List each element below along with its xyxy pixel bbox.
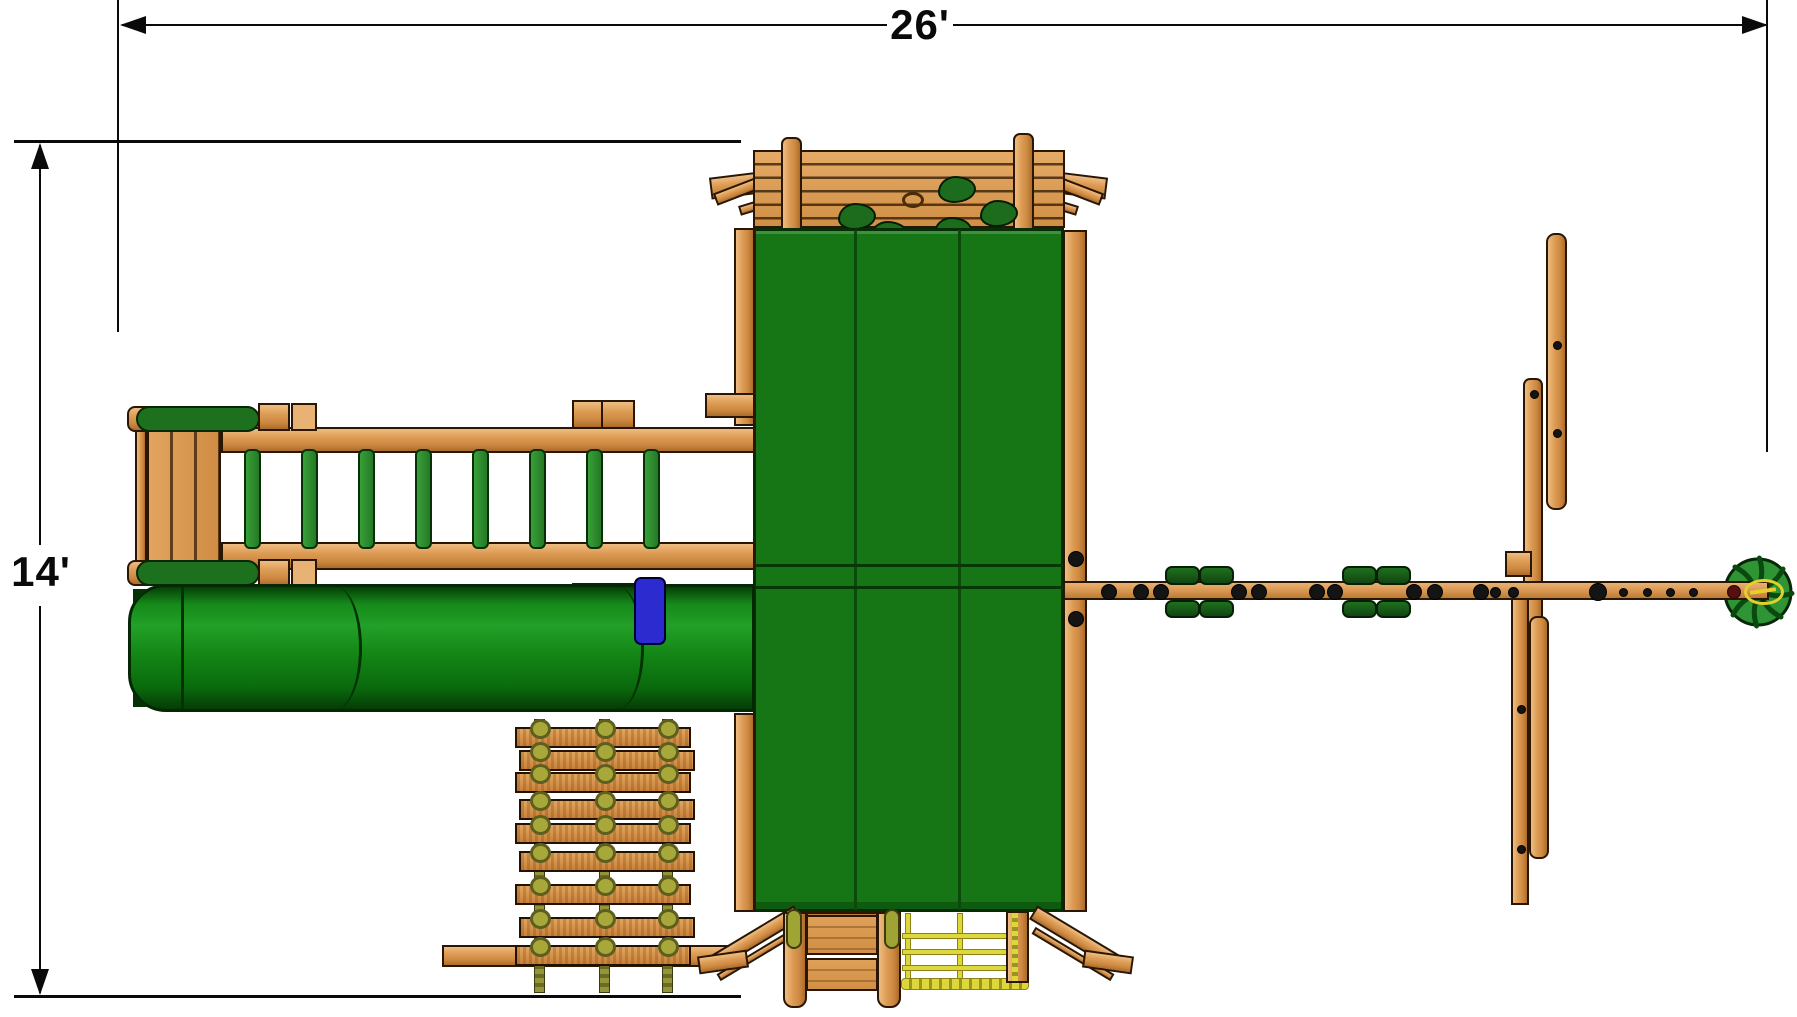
entry-side-rail — [135, 429, 147, 563]
rope-ladder-slat-5 — [515, 823, 691, 844]
swing-frame-cross-stub — [1505, 551, 1532, 577]
width-dimension-label: 26' — [875, 1, 965, 49]
canopy-seam-horizontal-2b — [755, 586, 1063, 589]
rope-knot-1-1 — [530, 719, 551, 739]
monkey-bar-rung-1 — [244, 449, 261, 549]
entry-grab-bar-bottom — [136, 560, 260, 586]
swing-frame-plank-c — [1511, 598, 1529, 905]
arrowhead-up-icon — [31, 143, 49, 169]
rope-ladder-slat-6 — [519, 851, 695, 872]
rope-knot-3-2 — [595, 764, 616, 784]
tube-fold-top-icon — [133, 589, 148, 604]
rope-knot-7-1 — [530, 876, 551, 896]
rope-net-post-rope — [1012, 913, 1018, 981]
rope-ladder-base-beam — [442, 945, 730, 967]
rope-ladder-slat-1 — [515, 727, 691, 748]
deck-attach-block-top-joint — [601, 402, 603, 427]
rope-knot-3-1 — [530, 764, 551, 784]
net-rope-vertical-2 — [957, 913, 963, 987]
rope-knot-5-2 — [595, 815, 616, 835]
rope-knot-8-1 — [530, 909, 551, 929]
rope-knot-2-2 — [595, 742, 616, 762]
stairs-tread-1 — [806, 915, 878, 955]
rope-knot-1-3 — [658, 719, 679, 739]
rope-knot-4-1 — [530, 791, 551, 811]
deck-rail-left-lower — [734, 713, 755, 912]
slide-entry-blue-ring — [634, 577, 666, 645]
swing-seat-2-bottom-left — [1342, 600, 1377, 618]
rail-bolt-1 — [1068, 551, 1084, 567]
bottom-brace-right-foot — [1082, 950, 1134, 975]
canopy-roof — [753, 228, 1064, 912]
extension-line-top-horizontal — [14, 140, 741, 143]
deck-rail-left-stub — [705, 393, 755, 418]
rope-ladder-slat-3 — [515, 772, 691, 793]
tube-slide-bell-seam-1 — [310, 587, 362, 709]
arrowhead-right-icon — [1742, 16, 1768, 34]
rope-knot-7-2 — [595, 876, 616, 896]
height-dimension-label: 14' — [0, 548, 82, 596]
swing-seat-1-bottom-left — [1165, 600, 1200, 618]
swing-seat-1-bottom-right — [1199, 600, 1234, 618]
net-rope-horizontal-3 — [902, 965, 1016, 971]
rope-ladder-slat-8 — [519, 917, 695, 938]
canopy-seam-vertical-1 — [854, 230, 857, 910]
monkey-bar-rung-7 — [586, 449, 603, 549]
entry-step-planks — [147, 429, 221, 563]
deck-rail-right — [1063, 230, 1087, 912]
rope-knot-6-2 — [595, 843, 616, 863]
extension-line-right-vertical — [1766, 0, 1768, 452]
swing-beam — [1063, 581, 1769, 600]
rope-knot-2-3 — [658, 742, 679, 762]
rope-knot-1-2 — [595, 719, 616, 739]
deck-attach-block-top — [572, 400, 635, 429]
tube-fold-bottom-icon — [133, 692, 148, 707]
rope-knot-4-3 — [658, 791, 679, 811]
entry-block-bottom-1 — [258, 559, 290, 587]
rope-knot-8-2 — [595, 909, 616, 929]
rope-ladder-slat-2 — [519, 750, 695, 771]
swing-frame-plank-a — [1546, 233, 1567, 510]
rope-knot-5-1 — [530, 815, 551, 835]
rail-bolt-3 — [1068, 611, 1084, 627]
entry-block-top-1 — [258, 403, 290, 431]
width-dimension-line-left-segment — [122, 24, 887, 26]
tube-slide-end-seam — [181, 587, 184, 709]
net-rope-horizontal-2 — [902, 949, 1016, 955]
stairs-hook-left — [786, 909, 802, 949]
extension-line-left-vertical — [117, 0, 119, 332]
extension-line-bottom-horizontal — [14, 995, 741, 998]
monkey-bar-rung-6 — [529, 449, 546, 549]
rope-ladder-slat-4 — [519, 799, 695, 820]
swing-seat-2-bottom-right — [1376, 600, 1411, 618]
monkey-bar-rung-3 — [358, 449, 375, 549]
rope-ladder-slat-7 — [515, 884, 691, 905]
arrowhead-down-icon — [31, 969, 49, 995]
playset-plan-diagram: 26' 14' — [0, 0, 1797, 1017]
rope-knot-6-1 — [530, 843, 551, 863]
rope-knot-2-1 — [530, 742, 551, 762]
rope-knot-4-2 — [595, 791, 616, 811]
swing-frame-plank-d — [1529, 616, 1549, 859]
stairs-tread-2 — [806, 958, 878, 991]
monkey-bar-rung-4 — [415, 449, 432, 549]
rope-knot-3-3 — [658, 764, 679, 784]
rope-knot-5-3 — [658, 815, 679, 835]
entry-grab-bar-top — [136, 406, 260, 432]
entry-block-bottom-2 — [291, 559, 317, 587]
entry-block-top-2 — [291, 403, 317, 431]
stairs-hook-right — [884, 909, 900, 949]
rope-knot-8-3 — [658, 909, 679, 929]
net-rope-horizontal-1 — [902, 933, 1016, 939]
height-dimension-line-upper-segment — [39, 145, 41, 545]
canopy-seam-horizontal-1 — [755, 564, 1063, 567]
rope-knot-7-3 — [658, 876, 679, 896]
net-rope-vertical-1 — [905, 913, 911, 987]
monkey-bar-rung-2 — [301, 449, 318, 549]
width-dimension-line-right-segment — [953, 24, 1766, 26]
arrowhead-left-icon — [120, 16, 146, 34]
monkey-bar-rung-5 — [472, 449, 489, 549]
monkey-bar-rung-8 — [643, 449, 660, 549]
height-dimension-line-lower-segment — [39, 606, 41, 993]
canopy-seam-vertical-2 — [958, 230, 961, 910]
rope-knot-6-3 — [658, 843, 679, 863]
